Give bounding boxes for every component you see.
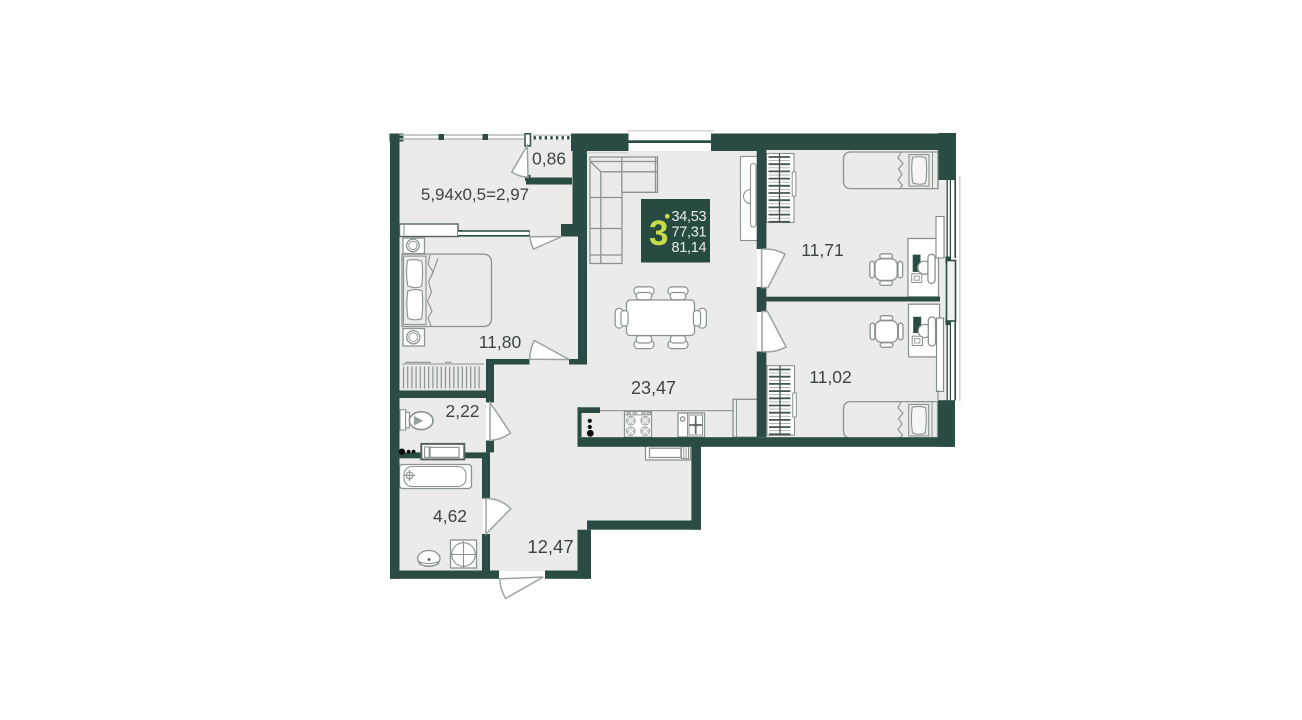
svg-text:11,71: 11,71: [801, 240, 844, 260]
svg-text:11,02: 11,02: [809, 367, 852, 387]
svg-text:3: 3: [649, 214, 668, 253]
svg-text:34,53: 34,53: [672, 209, 707, 225]
svg-text:5,94x0,5=2,97: 5,94x0,5=2,97: [421, 185, 529, 204]
svg-text:2,22: 2,22: [445, 401, 479, 421]
svg-text:4,62: 4,62: [433, 506, 467, 526]
svg-text:23,47: 23,47: [631, 378, 676, 398]
svg-text:0,86: 0,86: [532, 149, 566, 169]
svg-text:77,31: 77,31: [672, 225, 707, 241]
svg-text:11,80: 11,80: [479, 332, 522, 352]
svg-text:12,47: 12,47: [527, 536, 573, 557]
svg-text:81,14: 81,14: [672, 240, 707, 256]
